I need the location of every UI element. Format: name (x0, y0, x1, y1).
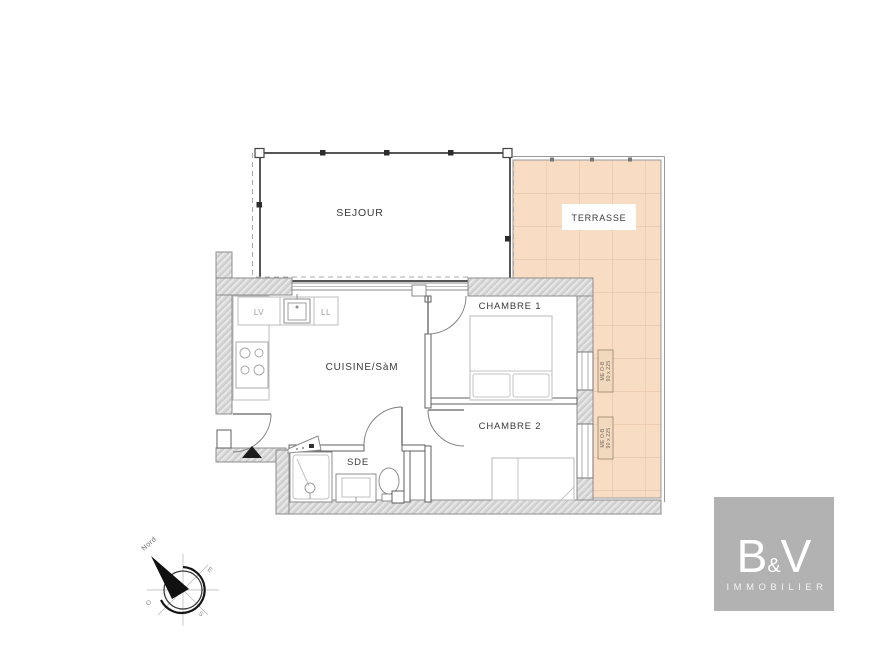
floor-plan: TERRASSE SEJOUR (0, 0, 873, 655)
bedroom-furniture (470, 316, 574, 500)
partition-sde-top-b (402, 445, 425, 451)
partition-sde-right (404, 451, 410, 502)
floor-plan-page: TERRASSE SEJOUR (0, 0, 873, 655)
wall-right-upper (577, 296, 593, 352)
svg-text:90 x 225: 90 x 225 (606, 361, 612, 382)
stove-icon (236, 342, 268, 388)
wall-left (216, 252, 232, 414)
compass-icon: Nord E O S (141, 536, 219, 626)
room-label-chambre2: CHAMBRE 2 (479, 421, 542, 432)
wall-top-chambre1 (468, 278, 593, 296)
svg-text:90 x 225: 90 x 225 (606, 428, 612, 449)
dishwasher-label: LV (254, 308, 264, 317)
post-corner-left (255, 149, 264, 158)
entrance-jamb (217, 430, 231, 448)
compass-south-label: S (197, 610, 205, 619)
logo-subtitle: IMMOBILIER (727, 582, 828, 593)
window-spec-label-1: ME O-B 90 x 225 (598, 350, 613, 392)
compass-west-label: O (145, 599, 153, 608)
window-chambre1 (577, 352, 593, 390)
wall-right-middle (577, 390, 593, 424)
partition-vertical-b (425, 334, 431, 408)
room-label-cuisine: CUISINE/SàM (326, 362, 399, 373)
chambre2-door-arc (428, 410, 464, 446)
wall-sde-left (276, 450, 289, 514)
toilet-icon (379, 468, 399, 494)
window-spec-label-2: ME O-B 90 x 225 (598, 417, 613, 459)
post-corner-right (503, 149, 512, 158)
toilet-stub-wall (392, 491, 404, 503)
sde-door-arc (364, 407, 402, 445)
wall-right-lower (577, 478, 593, 500)
room-label-terrasse: TERRASSE (572, 213, 627, 223)
room-label-sejour: SEJOUR (336, 207, 383, 219)
wall-top-left (216, 278, 292, 295)
window-chambre2 (577, 424, 593, 478)
brand-logo: B&V IMMOBILIER (714, 497, 834, 611)
kitchen-fixtures: LV LL (233, 294, 338, 400)
logo-background (714, 497, 834, 611)
room-label-chambre1: CHAMBRE 1 (479, 301, 542, 312)
chambre1-door-arc (428, 296, 466, 334)
room-label-sde: SDE (347, 457, 369, 468)
compass-north-label: Nord (141, 536, 158, 553)
sejour-area: SEJOUR (253, 149, 514, 297)
single-bed-icon (492, 458, 574, 500)
partition-vertical-c (425, 446, 431, 502)
compass-east-label: E (206, 566, 214, 575)
washer-label: LL (321, 308, 331, 317)
glass-door-post (412, 285, 426, 296)
